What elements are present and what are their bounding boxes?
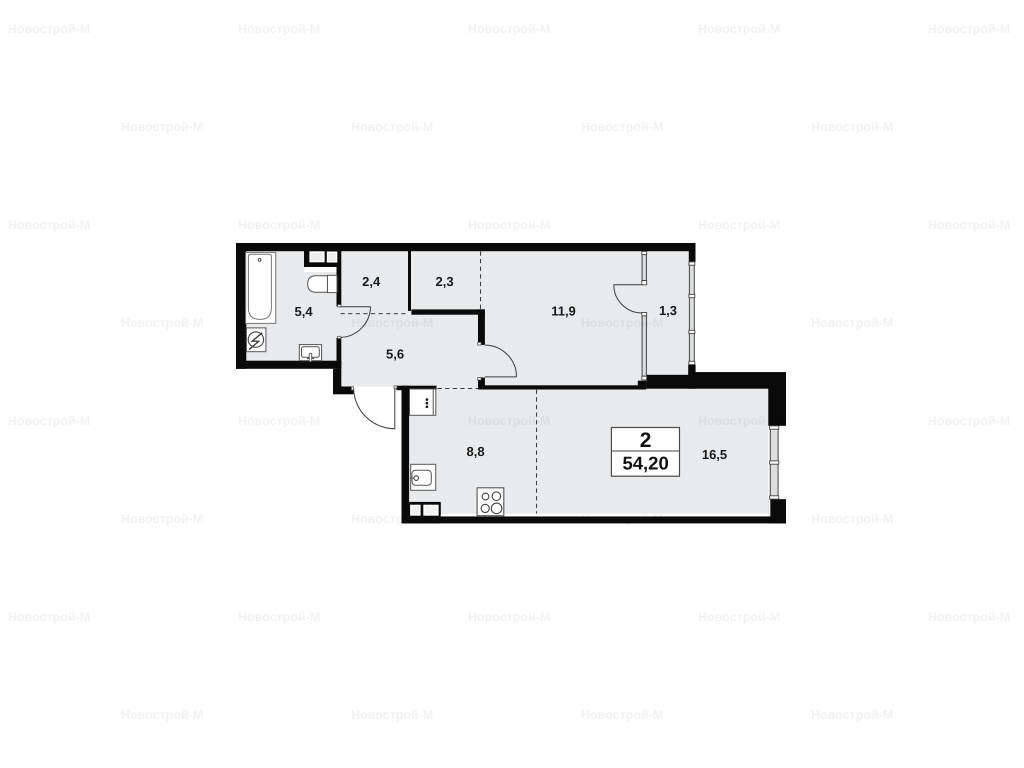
svg-text:2: 2 (640, 429, 652, 452)
svg-text:Новострой-М: Новострой-М (928, 22, 1010, 36)
svg-text:Новострой-М: Новострой-М (581, 512, 663, 526)
svg-text:Новострой-М: Новострой-М (811, 512, 893, 526)
svg-text:54,20: 54,20 (622, 453, 668, 474)
svg-text:Новострой-М: Новострой-М (351, 120, 433, 134)
svg-text:Новострой-М: Новострой-М (8, 218, 90, 232)
svg-text:5,6: 5,6 (386, 346, 404, 361)
svg-text:Новострой-М: Новострой-М (698, 22, 780, 36)
svg-text:Новострой-М: Новострой-М (698, 414, 780, 428)
svg-text:Новострой-М: Новострой-М (238, 22, 320, 36)
svg-text:Новострой-М: Новострой-М (811, 708, 893, 722)
svg-text:Новострой-М: Новострой-М (928, 610, 1010, 624)
svg-text:2,3: 2,3 (436, 274, 454, 289)
svg-text:Новострой-М: Новострой-М (698, 218, 780, 232)
svg-text:Новострой-М: Новострой-М (121, 708, 203, 722)
svg-text:Новострой-М: Новострой-М (121, 120, 203, 134)
svg-text:16,5: 16,5 (702, 447, 727, 462)
svg-text:11,9: 11,9 (551, 303, 576, 318)
svg-text:Новострой-М: Новострой-М (811, 120, 893, 134)
svg-text:Новострой-М: Новострой-М (8, 414, 90, 428)
svg-text:Новострой-М: Новострой-М (121, 512, 203, 526)
svg-text:8,8: 8,8 (467, 444, 485, 459)
svg-text:Новострой-М: Новострой-М (468, 218, 550, 232)
svg-text:Новострой-М: Новострой-М (8, 610, 90, 624)
svg-text:Новострой-М: Новострой-М (351, 512, 433, 526)
svg-text:Новострой-М: Новострой-М (928, 414, 1010, 428)
svg-text:Новострой-М: Новострой-М (581, 316, 663, 330)
svg-text:2,4: 2,4 (362, 274, 381, 289)
svg-text:Новострой-М: Новострой-М (468, 22, 550, 36)
svg-text:Новострой-М: Новострой-М (581, 120, 663, 134)
svg-text:Новострой-М: Новострой-М (121, 316, 203, 330)
svg-text:Новострой-М: Новострой-М (238, 610, 320, 624)
svg-text:Новострой-М: Новострой-М (928, 218, 1010, 232)
svg-text:Новострой-М: Новострой-М (698, 610, 780, 624)
svg-text:Новострой-М: Новострой-М (351, 316, 433, 330)
svg-text:Новострой-М: Новострой-М (811, 316, 893, 330)
svg-text:Новострой-М: Новострой-М (468, 414, 550, 428)
svg-text:Новострой-М: Новострой-М (351, 708, 433, 722)
svg-text:Новострой-М: Новострой-М (581, 708, 663, 722)
svg-text:Новострой-М: Новострой-М (8, 22, 90, 36)
svg-text:Новострой-М: Новострой-М (468, 610, 550, 624)
svg-text:5,4: 5,4 (295, 304, 314, 319)
svg-text:Новострой-М: Новострой-М (238, 414, 320, 428)
svg-text:Новострой-М: Новострой-М (238, 218, 320, 232)
